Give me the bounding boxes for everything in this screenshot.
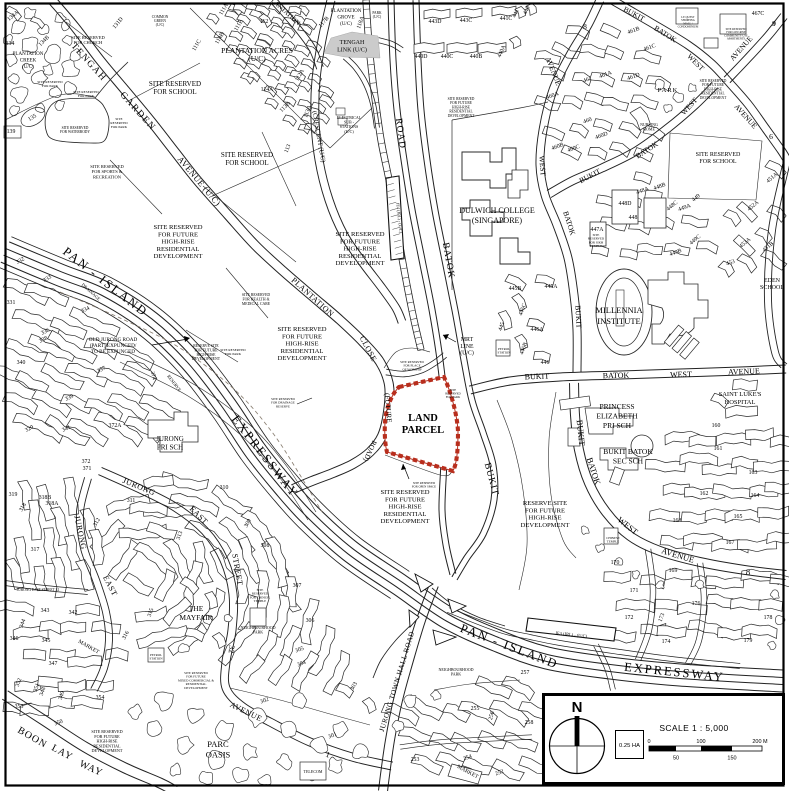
svg-text:340: 340 bbox=[17, 360, 26, 366]
svg-text:443D: 443D bbox=[429, 19, 442, 25]
svg-text:SITE RESERVEDFOR SCHOOL: SITE RESERVEDFOR SCHOOL bbox=[149, 80, 201, 96]
svg-text:176: 176 bbox=[692, 601, 701, 607]
svg-text:139: 139 bbox=[7, 129, 16, 135]
svg-text:163: 163 bbox=[749, 470, 758, 476]
svg-text:445A: 445A bbox=[545, 284, 559, 290]
svg-text:SCALE 1 : 5,000: SCALE 1 : 5,000 bbox=[659, 723, 728, 733]
svg-text:445B: 445B bbox=[509, 286, 522, 292]
svg-text:AVENUE: AVENUE bbox=[728, 366, 760, 376]
svg-text:50: 50 bbox=[673, 756, 679, 762]
svg-text:SITE RESERVEDFOR SPORTS &RECRE: SITE RESERVEDFOR SPORTS &RECREATION bbox=[90, 164, 124, 179]
svg-text:257: 257 bbox=[521, 670, 530, 676]
svg-text:310: 310 bbox=[220, 485, 229, 491]
svg-text:9: 9 bbox=[773, 22, 776, 28]
svg-text:308: 308 bbox=[261, 543, 270, 549]
svg-text:311: 311 bbox=[127, 498, 136, 504]
svg-text:162: 162 bbox=[700, 491, 709, 497]
svg-text:SITE RESERVEDFOR SCHOOL: SITE RESERVEDFOR SCHOOL bbox=[696, 152, 741, 165]
svg-text:JURONG EAST STREET 31: JURONG EAST STREET 31 bbox=[17, 588, 60, 592]
svg-text:174: 174 bbox=[662, 639, 671, 645]
svg-text:100: 100 bbox=[696, 739, 705, 745]
svg-text:MRTLINE(U/C): MRTLINE(U/C) bbox=[460, 337, 474, 357]
svg-text:160: 160 bbox=[712, 423, 721, 429]
svg-text:178: 178 bbox=[764, 615, 773, 621]
svg-text:CHINESETEMPLE: CHINESETEMPLE bbox=[606, 536, 620, 544]
svg-text:WEST: WEST bbox=[537, 155, 548, 177]
svg-text:448D: 448D bbox=[619, 201, 632, 207]
svg-text:0: 0 bbox=[647, 739, 650, 745]
svg-text:200 M: 200 M bbox=[752, 739, 768, 745]
svg-text:347: 347 bbox=[49, 661, 58, 667]
svg-text:467C: 467C bbox=[752, 11, 765, 17]
svg-text:443C: 443C bbox=[460, 18, 473, 24]
svg-text:PARK(U/C): PARK(U/C) bbox=[372, 11, 382, 19]
svg-text:BUKIT: BUKIT bbox=[525, 372, 550, 382]
svg-text:LANDPARCEL: LANDPARCEL bbox=[402, 413, 444, 436]
svg-text:170: 170 bbox=[611, 560, 620, 566]
svg-text:167: 167 bbox=[726, 540, 735, 546]
svg-text:371: 371 bbox=[83, 466, 92, 472]
svg-text:N: N bbox=[572, 699, 583, 716]
svg-text:169: 169 bbox=[669, 568, 678, 574]
svg-text:446A: 446A bbox=[531, 327, 545, 333]
svg-text:255: 255 bbox=[471, 706, 480, 712]
svg-text:WEST: WEST bbox=[670, 370, 692, 379]
svg-text:BUKIT: BUKIT bbox=[573, 305, 583, 329]
svg-text:372: 372 bbox=[82, 459, 91, 465]
svg-text:SITE RESERVEDFOR SCHOOL: SITE RESERVEDFOR SCHOOL bbox=[221, 151, 273, 167]
svg-text:SAINT LUKE'SHOSPITAL: SAINT LUKE'SHOSPITAL bbox=[719, 391, 762, 406]
svg-text:317: 317 bbox=[31, 547, 40, 553]
svg-text:331: 331 bbox=[7, 300, 16, 306]
svg-text:168: 168 bbox=[673, 518, 682, 524]
svg-text:342: 342 bbox=[69, 610, 78, 616]
svg-text:441C: 441C bbox=[500, 16, 513, 22]
svg-text:TENGAHLINK (U/C): TENGAHLINK (U/C) bbox=[337, 40, 367, 54]
svg-text:SITE RESERVEDFOR CHURCH: SITE RESERVEDFOR CHURCH bbox=[71, 35, 105, 45]
svg-text:319: 319 bbox=[9, 492, 18, 498]
svg-text:354: 354 bbox=[96, 695, 105, 701]
svg-text:PARK: PARK bbox=[658, 87, 679, 94]
svg-text:253: 253 bbox=[411, 757, 420, 763]
svg-text:MILLENNIAINSTITUTE: MILLENNIAINSTITUTE bbox=[595, 305, 643, 326]
svg-text:150: 150 bbox=[727, 756, 736, 762]
svg-text:318A: 318A bbox=[46, 501, 60, 507]
svg-text:SITE RESERVEDFOR LOW-RISECOMMU: SITE RESERVEDFOR LOW-RISECOMMUNITY USEAP… bbox=[724, 28, 748, 41]
svg-text:114A: 114A bbox=[261, 87, 274, 93]
svg-text:172: 172 bbox=[625, 615, 634, 621]
svg-text:440D: 440D bbox=[415, 54, 428, 60]
svg-text:32: 32 bbox=[227, 645, 237, 654]
svg-text:SITE RESERVEDFOR HEALTH &MEDIC: SITE RESERVEDFOR HEALTH &MEDICAL CARE bbox=[242, 293, 271, 306]
svg-text:161: 161 bbox=[714, 446, 723, 452]
svg-text:440C: 440C bbox=[441, 54, 454, 60]
svg-text:171: 171 bbox=[630, 588, 639, 594]
svg-text:8: 8 bbox=[583, 22, 587, 31]
svg-text:447A: 447A bbox=[591, 227, 605, 233]
svg-text:258: 258 bbox=[525, 720, 534, 726]
svg-text:164: 164 bbox=[751, 493, 760, 499]
svg-text:BATOK: BATOK bbox=[603, 371, 630, 380]
svg-text:343: 343 bbox=[41, 608, 50, 614]
svg-text:6: 6 bbox=[769, 132, 773, 141]
svg-text:179: 179 bbox=[744, 638, 753, 644]
svg-text:PARCOASIS: PARCOASIS bbox=[206, 739, 231, 760]
svg-text:448: 448 bbox=[629, 215, 638, 221]
svg-text:SITE RESERVEDFOR WATERBODY: SITE RESERVEDFOR WATERBODY bbox=[60, 126, 90, 134]
svg-text:346: 346 bbox=[10, 636, 19, 642]
svg-text:PETROLSTATION: PETROLSTATION bbox=[149, 653, 163, 661]
svg-text:440B: 440B bbox=[470, 54, 483, 60]
svg-text:306: 306 bbox=[306, 618, 315, 624]
svg-text:307: 307 bbox=[293, 583, 302, 589]
svg-text:8: 8 bbox=[746, 567, 750, 577]
svg-text:PETROLSTATION: PETROLSTATION bbox=[497, 347, 511, 355]
svg-text:JURONGPRI SCH: JURONGPRI SCH bbox=[156, 435, 184, 452]
svg-text:SITE RESERVEDFOR OPEN SPACE: SITE RESERVEDFOR OPEN SPACE bbox=[412, 481, 436, 489]
svg-text:372A: 372A bbox=[109, 423, 123, 429]
svg-text:134: 134 bbox=[6, 41, 15, 47]
svg-text:353: 353 bbox=[15, 704, 24, 710]
svg-text:345: 345 bbox=[42, 638, 51, 644]
svg-text:112: 112 bbox=[260, 19, 269, 25]
svg-text:OLD JURONG ROAD(PART) EXPUNGED: OLD JURONG ROAD(PART) EXPUNGED/TO BE EXP… bbox=[89, 337, 138, 355]
svg-text:165: 165 bbox=[734, 514, 743, 520]
svg-text:446: 446 bbox=[541, 360, 550, 366]
svg-text:TELECOM: TELECOM bbox=[304, 769, 323, 774]
svg-text:0.25 HA: 0.25 HA bbox=[619, 743, 640, 749]
